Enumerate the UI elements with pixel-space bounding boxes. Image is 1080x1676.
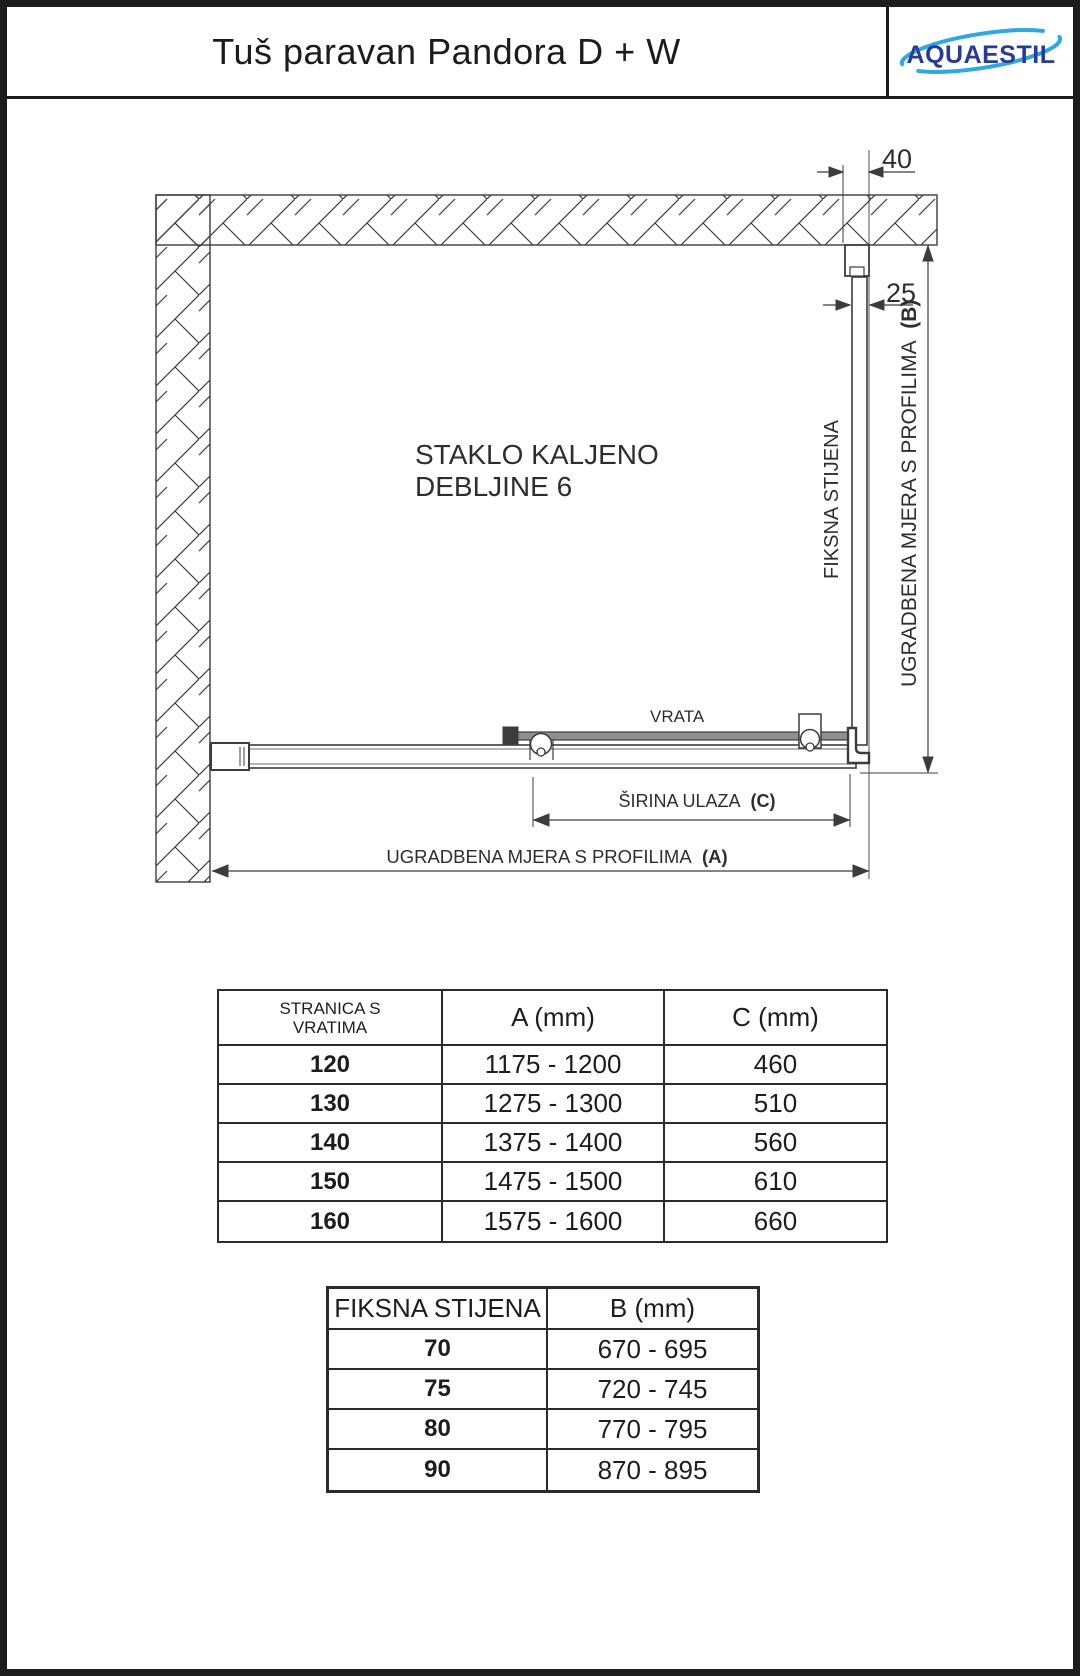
dim-a-text: UGRADBENA MJERA S PROFILIMA [386, 846, 691, 867]
t1-header-col1-line2: VRATIMA [279, 1018, 380, 1037]
t1-row-size: 160 [219, 1202, 443, 1241]
t1-row-a: 1575 - 1600 [443, 1202, 665, 1241]
dim-40-value: 40 [875, 144, 919, 175]
fixed-panel-table: FIKSNA STIJENA B (mm) 70 670 - 695 75 72… [326, 1286, 760, 1493]
t1-row-c: 560 [665, 1124, 886, 1163]
t1-row-size: 150 [219, 1163, 443, 1202]
dim-a-suffix: (A) [702, 846, 728, 867]
door-end-cap [503, 727, 518, 744]
dim-b-suffix: (B) [898, 300, 921, 329]
left-wall-profile [211, 743, 249, 770]
t1-row-c: 660 [665, 1202, 886, 1241]
dim-a-label: UGRADBENA MJERA S PROFILIMA (A) [337, 846, 777, 868]
t2-row-size: 90 [329, 1450, 548, 1490]
t1-row-size: 140 [219, 1124, 443, 1163]
glass-note-line2: DEBLJINE 6 [415, 471, 659, 503]
left-wall [156, 195, 210, 882]
fixed-glass-panel [845, 245, 869, 745]
glass-note: STAKLO KALJENO DEBLJINE 6 [415, 439, 659, 503]
t1-row-c: 510 [665, 1085, 886, 1124]
t1-row-a: 1275 - 1300 [443, 1085, 665, 1124]
t1-row-a: 1475 - 1500 [443, 1163, 665, 1202]
dim-c-text: ŠIRINA ULAZA [618, 791, 740, 811]
dim-c-suffix: (C) [751, 791, 776, 811]
t1-header-col1: STRANICA S VRATIMA [219, 991, 443, 1046]
door-label: VRATA [650, 707, 704, 727]
dim-c-label: ŠIRINA ULAZA (C) [547, 791, 847, 812]
t2-row-b: 670 - 695 [548, 1330, 757, 1370]
t2-header-col2: B (mm) [548, 1289, 757, 1330]
t1-row-c: 460 [665, 1046, 886, 1085]
t2-row-b: 870 - 895 [548, 1450, 757, 1490]
fixed-panel-label: FIKSNA STIJENA [821, 439, 841, 579]
t1-header-col3: C (mm) [665, 991, 886, 1046]
t1-row-size: 130 [219, 1085, 443, 1124]
t2-row-size: 70 [329, 1330, 548, 1370]
t2-row-size: 75 [329, 1370, 548, 1410]
t2-row-size: 80 [329, 1410, 548, 1450]
glass-note-line1: STAKLO KALJENO [415, 439, 659, 471]
t1-header-col2: A (mm) [443, 991, 665, 1046]
top-wall [156, 195, 937, 245]
door-side-table: STRANICA S VRATIMA A (mm) C (mm) 120 117… [217, 989, 888, 1243]
dim-b-label: UGRADBENA MJERA S PROFILIMA (B) [898, 337, 920, 687]
t1-row-c: 610 [665, 1163, 886, 1202]
t2-row-b: 720 - 745 [548, 1370, 757, 1410]
t2-header-col1: FIKSNA STIJENA [329, 1289, 548, 1330]
t2-row-b: 770 - 795 [548, 1410, 757, 1450]
datasheet-page: Tuš paravan Pandora D + W AQUAESTIL [0, 0, 1080, 1676]
t1-row-a: 1375 - 1400 [443, 1124, 665, 1163]
dim-b-text: UGRADBENA MJERA S PROFILIMA [898, 340, 921, 687]
walls [156, 195, 937, 882]
t1-row-a: 1175 - 1200 [443, 1046, 665, 1085]
t1-header-col1-line1: STRANICA S [279, 999, 380, 1018]
t1-row-size: 120 [219, 1046, 443, 1085]
